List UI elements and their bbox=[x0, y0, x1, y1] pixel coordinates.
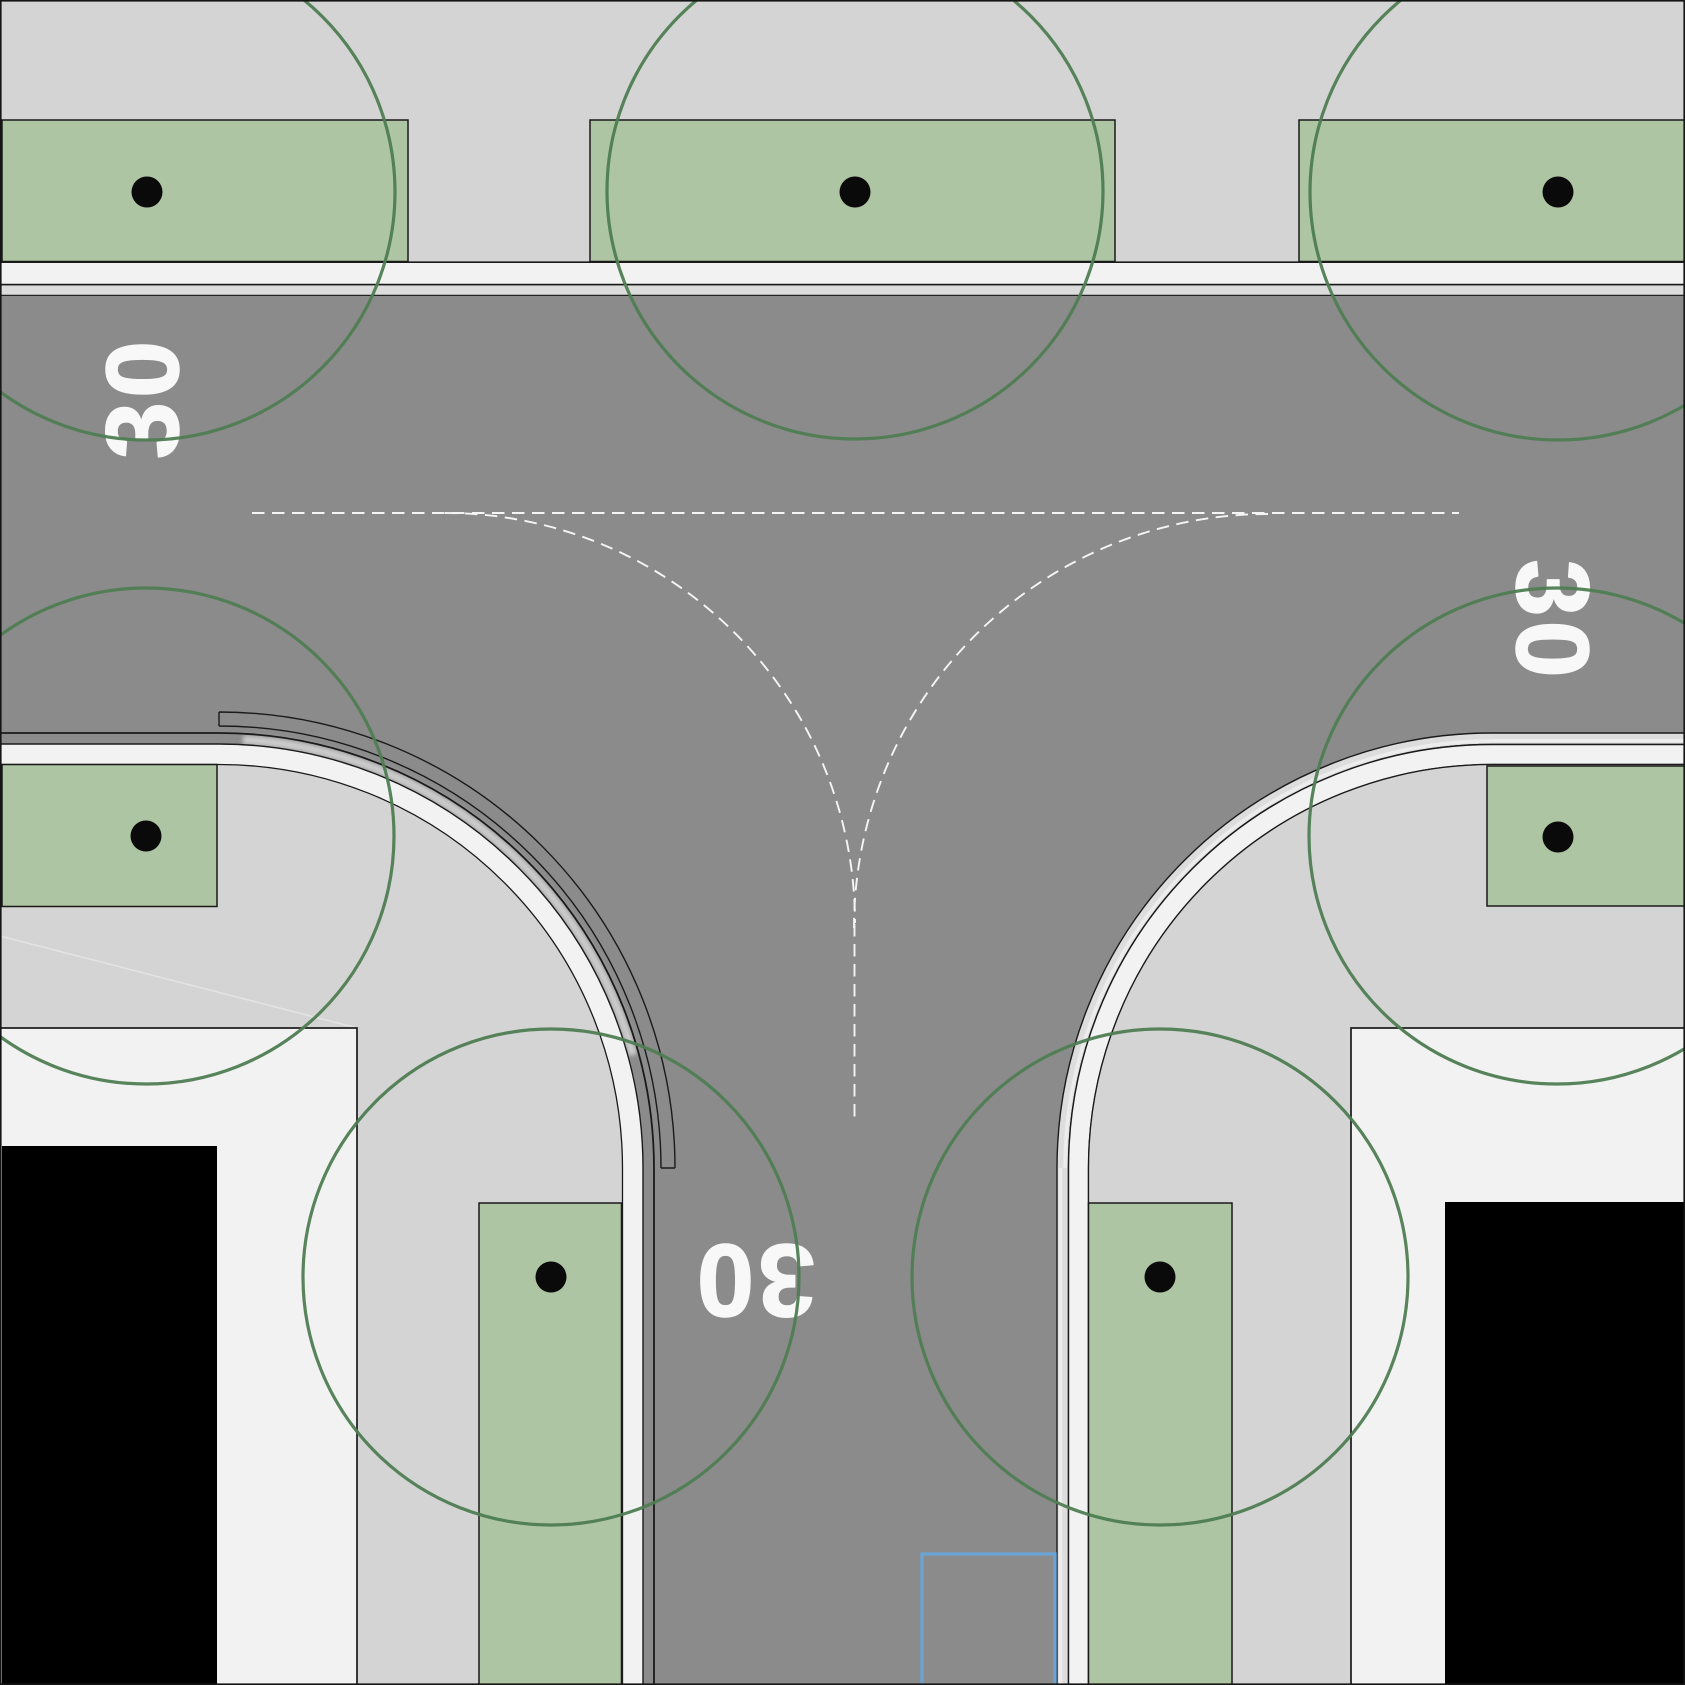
svg-text:30: 30 bbox=[1495, 559, 1610, 682]
